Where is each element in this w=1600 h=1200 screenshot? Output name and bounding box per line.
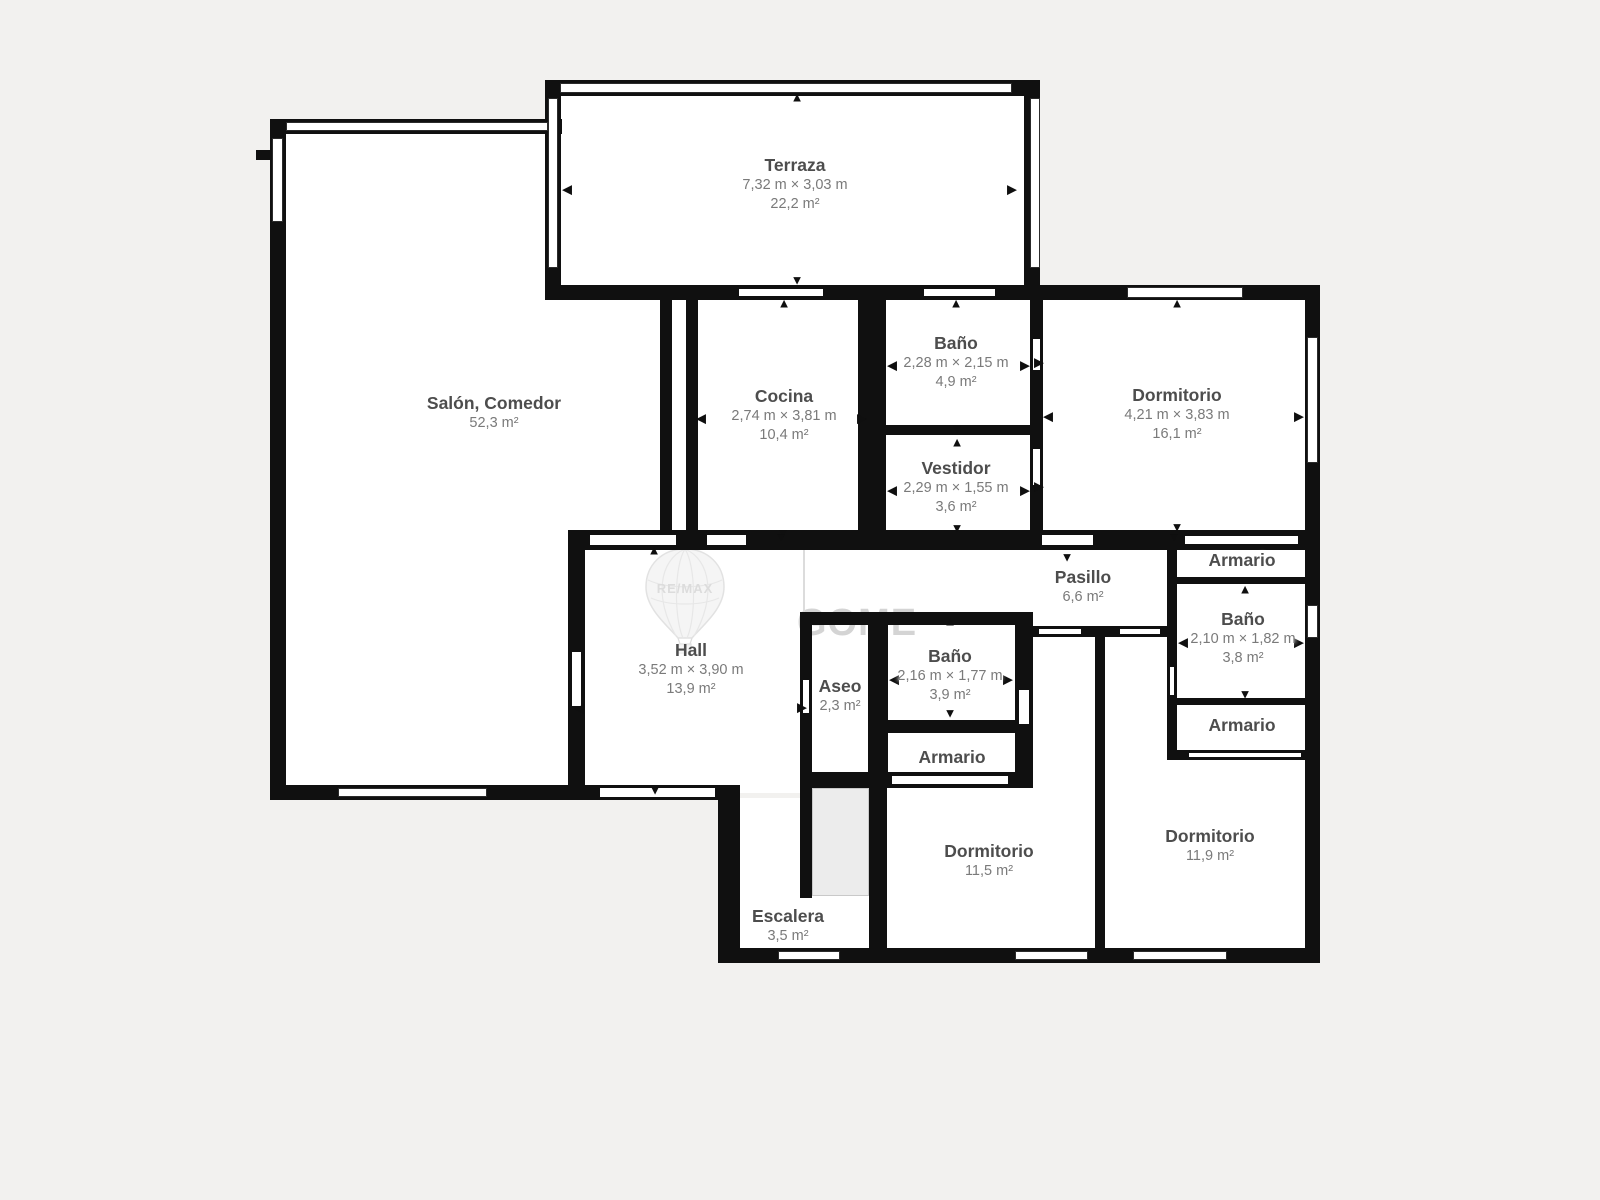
arrow-up-icon: ▲ xyxy=(791,91,804,104)
room-area: 2,3 m² xyxy=(819,697,862,716)
room-label-bano_e: Baño2,10 m × 1,82 m3,8 m² xyxy=(1190,609,1295,668)
arrow-down-icon: ▼ xyxy=(649,784,662,797)
room-label-terraza: Terraza7,32 m × 3,03 m22,2 m² xyxy=(742,155,847,214)
arrow-down-icon: ▼ xyxy=(944,707,957,720)
room-area: 22,2 m² xyxy=(742,195,847,214)
arrow-up-icon: ▲ xyxy=(944,615,957,628)
room-dimensions: 2,74 m × 3,81 m xyxy=(731,407,836,426)
stair-wall xyxy=(800,788,812,898)
room-label-bano_mid: Baño2,16 m × 1,77 m3,9 m² xyxy=(897,646,1002,705)
armario-e2-door xyxy=(1187,751,1303,759)
room-name: Baño xyxy=(897,646,1002,667)
room-dimensions: 2,29 m × 1,55 m xyxy=(903,479,1008,498)
terraza-left-window xyxy=(548,98,558,268)
arrow-up-icon: ▲ xyxy=(950,297,963,310)
bano-e-door xyxy=(1168,665,1176,697)
room-area: 10,4 m² xyxy=(731,426,836,445)
bano-e-window xyxy=(1307,605,1318,638)
room-area: 4,9 m² xyxy=(903,373,1008,392)
arrow-down-icon: ▼ xyxy=(791,274,804,287)
arrow-up-icon: ▲ xyxy=(778,297,791,310)
room-area: 3,8 m² xyxy=(1190,649,1295,668)
room-name: Vestidor xyxy=(903,458,1008,479)
dormitorio-ne-window xyxy=(1127,287,1243,298)
room-name: Salón, Comedor xyxy=(427,393,561,414)
floor-plan: RE/MAX GOME ▲▼◀▶▲▲▲▼◀▶◀▶▼▲◀▶▼▼◀▶▶▶▲▼◀▶▼▼… xyxy=(0,0,1600,1200)
east-column-wall-west xyxy=(1167,535,1177,760)
dormitorio-sw-bottom-window xyxy=(1015,951,1088,960)
arrow-down-icon: ▼ xyxy=(1061,551,1074,564)
armario-e1-door xyxy=(1183,534,1300,546)
salon-bottom-window xyxy=(338,788,487,797)
arrow-right-icon: ▶ xyxy=(1034,480,1044,493)
room-dimensions: 3,52 m × 3,90 m xyxy=(638,661,743,680)
arrow-left-icon: ◀ xyxy=(887,359,897,372)
dormitorio-se-door xyxy=(1118,627,1162,636)
salon-top-window xyxy=(286,122,548,131)
room-name: Terraza xyxy=(742,155,847,176)
arrow-right-icon: ▶ xyxy=(1034,356,1044,369)
arrow-right-icon: ▶ xyxy=(1020,359,1030,372)
arrow-up-icon: ▲ xyxy=(951,436,964,449)
hall-pasillo-divider-line xyxy=(803,550,805,612)
salon-left-window xyxy=(272,138,283,222)
arrow-down-icon: ▼ xyxy=(775,531,788,544)
arrow-left-icon: ◀ xyxy=(887,484,897,497)
room-area: 3,5 m² xyxy=(752,927,824,946)
arrow-left-icon: ◀ xyxy=(696,412,706,425)
arrow-right-icon: ▶ xyxy=(857,412,867,425)
room-name: Dormitorio xyxy=(1124,385,1229,406)
room-label-armario_e1: Armario xyxy=(1208,550,1275,571)
room-name: Pasillo xyxy=(1055,567,1111,588)
room-area: 11,5 m² xyxy=(944,862,1033,881)
bano-armario-divider xyxy=(886,720,1015,733)
arrow-right-icon: ▶ xyxy=(1294,410,1304,423)
dormitorio-sw-door xyxy=(1037,627,1083,636)
room-area: 16,1 m² xyxy=(1124,425,1229,444)
arrow-up-icon: ▲ xyxy=(648,544,661,557)
room-dimensions: 2,16 m × 1,77 m xyxy=(897,667,1002,686)
room-name: Baño xyxy=(1190,609,1295,630)
room-dimensions: 7,32 m × 3,03 m xyxy=(742,176,847,195)
salon-floor xyxy=(278,128,568,791)
room-name: Cocina xyxy=(731,386,836,407)
terraza-top-window xyxy=(560,83,1012,93)
dormitorio-ne-wall-west xyxy=(1030,296,1043,536)
room-area: 52,3 m² xyxy=(427,414,561,433)
room-label-salon: Salón, Comedor52,3 m² xyxy=(427,393,561,433)
room-area: 3,6 m² xyxy=(903,498,1008,517)
arrow-right-icon: ▶ xyxy=(797,701,807,714)
escalera-bottom-window xyxy=(778,951,840,960)
arrow-right-icon: ▶ xyxy=(1020,484,1030,497)
room-label-vestidor: Vestidor2,29 m × 1,55 m3,6 m² xyxy=(903,458,1008,517)
room-label-armario_e2: Armario xyxy=(1208,715,1275,736)
room-name: Dormitorio xyxy=(944,841,1033,862)
room-label-dorm_sw: Dormitorio11,5 m² xyxy=(944,841,1033,881)
room-dimensions: 2,10 m × 1,82 m xyxy=(1190,630,1295,649)
room-name: Aseo xyxy=(819,676,862,697)
room-label-dorm_se: Dormitorio11,9 m² xyxy=(1165,826,1254,866)
room-area: 3,9 m² xyxy=(897,686,1002,705)
escalera-wall-west xyxy=(718,785,740,963)
aseo-bano-wall xyxy=(868,612,888,785)
room-name: Escalera xyxy=(752,906,824,927)
svg-text:RE/MAX: RE/MAX xyxy=(657,581,714,596)
arrow-up-icon: ▲ xyxy=(1171,297,1184,310)
arrow-down-icon: ▼ xyxy=(951,522,964,535)
room-label-pasillo: Pasillo6,6 m² xyxy=(1055,567,1111,607)
armario-mid-door xyxy=(890,774,1010,786)
dormitorio-se-bottom-window xyxy=(1133,951,1227,960)
room-name: Baño xyxy=(903,333,1008,354)
room-label-escalera: Escalera3,5 m² xyxy=(752,906,824,946)
room-area: 11,9 m² xyxy=(1165,847,1254,866)
cocina-hall-door xyxy=(705,533,748,547)
room-label-dorm_ne: Dormitorio4,21 m × 3,83 m16,1 m² xyxy=(1124,385,1229,444)
arrow-left-icon: ◀ xyxy=(1178,636,1188,649)
room-area: 6,6 m² xyxy=(1055,588,1111,607)
terraza-right-window xyxy=(1030,98,1040,268)
room-dimensions: 4,21 m × 3,83 m xyxy=(1124,406,1229,425)
room-name: Dormitorio xyxy=(1165,826,1254,847)
inter-dormitorio-wall xyxy=(1095,637,1105,948)
room-label-armario_mid: Armario xyxy=(918,747,985,768)
salon-hall-door xyxy=(588,533,678,547)
arrow-left-icon: ◀ xyxy=(562,183,572,196)
room-label-cocina: Cocina2,74 m × 3,81 m10,4 m² xyxy=(731,386,836,445)
stairwell-void xyxy=(812,788,869,896)
dormitorio-ne-pasillo-door xyxy=(1040,533,1095,547)
room-label-hall: Hall3,52 m × 3,90 m13,9 m² xyxy=(638,640,743,699)
room-name: Hall xyxy=(638,640,743,661)
hall-west-door xyxy=(570,650,583,708)
room-name: Armario xyxy=(1208,715,1275,736)
dormitorio-sw-wall-west xyxy=(869,785,887,948)
room-name: Armario xyxy=(1208,550,1275,571)
arrow-left-icon: ◀ xyxy=(574,702,584,715)
cocina-wall-west-a xyxy=(660,296,672,536)
bano-mid-door xyxy=(1017,688,1031,726)
arrow-right-icon: ▶ xyxy=(1003,673,1013,686)
room-label-bano_top: Baño2,28 m × 2,15 m4,9 m² xyxy=(903,333,1008,392)
arrow-left-icon: ◀ xyxy=(1043,410,1053,423)
arrow-right-icon: ▶ xyxy=(1007,183,1017,196)
room-dimensions: 2,28 m × 2,15 m xyxy=(903,354,1008,373)
room-area: 13,9 m² xyxy=(638,680,743,699)
right-wall-window-1 xyxy=(1307,337,1318,463)
aseo-bano-north-wall xyxy=(800,612,1033,625)
room-label-aseo: Aseo2,3 m² xyxy=(819,676,862,716)
room-name: Armario xyxy=(918,747,985,768)
arrow-up-icon: ▲ xyxy=(1239,583,1252,596)
arrow-down-icon: ▼ xyxy=(1239,688,1252,701)
arrow-down-icon: ▼ xyxy=(1168,531,1181,544)
